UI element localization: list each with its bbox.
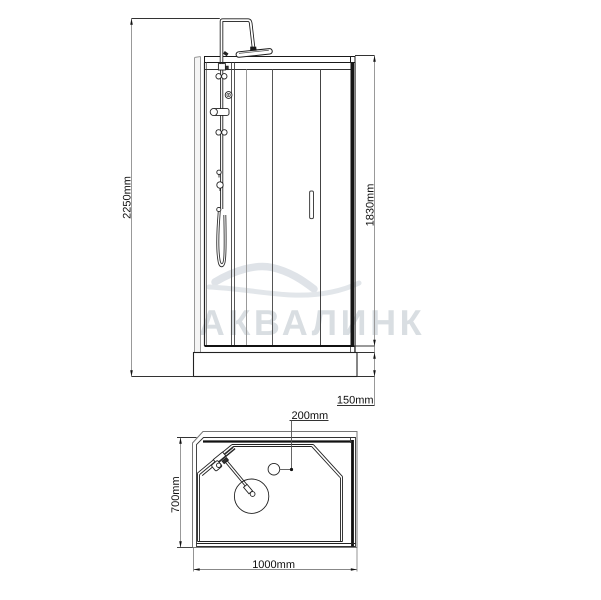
svg-text:2250mm: 2250mm [122,176,134,219]
svg-text:200mm: 200mm [292,410,329,422]
svg-text:АКВАЛИНК: АКВАЛИНК [199,302,426,343]
svg-text:1830mm: 1830mm [364,184,376,227]
svg-text:150mm: 150mm [337,395,374,407]
svg-text:1000mm: 1000mm [252,559,295,571]
svg-text:700mm: 700mm [170,476,182,513]
